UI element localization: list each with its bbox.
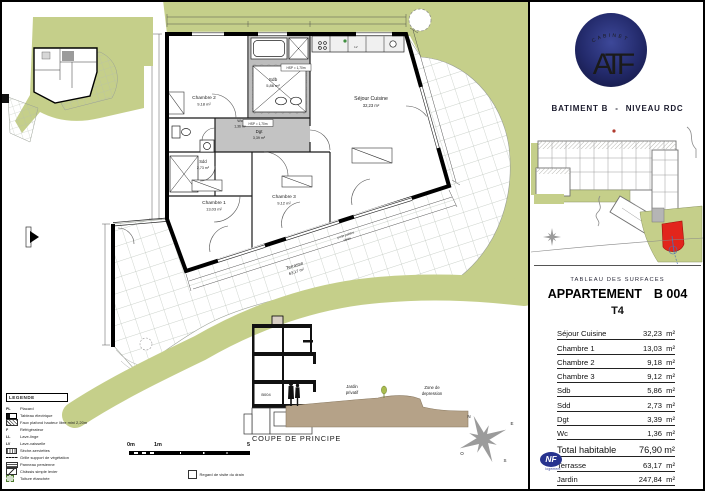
label-dgt: Dgt [256, 129, 264, 134]
svg-text:S: S [503, 458, 506, 463]
separator-line [534, 265, 701, 266]
svg-text:3,39 m²: 3,39 m² [253, 136, 266, 140]
label-wc: Wc [237, 119, 243, 123]
legend-item: LLLave-linge [6, 433, 156, 440]
surfaces-table: Séjour Cuisine32,23m² Chambre 113,03m² C… [557, 326, 675, 486]
person-silhouettes [288, 382, 300, 406]
label-sdd: Sdd [199, 159, 207, 164]
building-level-title: BATIMENT B-NIVEAU RDC [530, 104, 705, 113]
roof-membrane-icon [6, 475, 14, 483]
cabinet-atf-logo: CABINET ATF [575, 13, 647, 87]
svg-text:9,12 m²: 9,12 m² [277, 201, 291, 206]
apartment-type: T4 [530, 305, 705, 317]
table-row: Wc1,36m² [557, 426, 675, 440]
drain-inspection-icon [188, 470, 197, 479]
svg-text:Zone de: Zone de [424, 385, 440, 390]
table-row: Terrasse63,17m² [557, 457, 675, 471]
label-chambre3: Chambre 3 [272, 194, 296, 200]
shutter-panel-icon [6, 462, 18, 468]
table-row: Sdd2,73m² [557, 397, 675, 411]
svg-text:privatif: privatif [346, 390, 359, 395]
right-panel: CABINET ATF [530, 0, 705, 491]
apartment-title: APPARTEMENTB 004 [530, 287, 705, 301]
table-row: Séjour Cuisine32,23m² [557, 326, 675, 340]
label-chambre2: Chambre 2 [192, 95, 216, 101]
entry-arrow-icon [26, 227, 39, 247]
legend-item: FRéfrigérateur [6, 426, 156, 433]
panel-divider [528, 0, 530, 491]
svg-text:2,73 m²: 2,73 m² [197, 166, 210, 170]
nf-logo-icon: NF [540, 452, 562, 467]
map-compass-icon [543, 228, 561, 246]
svg-text:depression: depression [422, 391, 443, 396]
table-row: Chambre 39,12m² [557, 369, 675, 383]
label-chambre1: Chambre 1 [202, 200, 226, 206]
table-row: Chambre 113,03m² [557, 340, 675, 354]
legend-item: Tableau électrique [6, 412, 156, 419]
svg-text:ATF: ATF [593, 48, 635, 81]
table-row: Jardin247,84m² [557, 472, 675, 486]
coupe-title: COUPE DE PRINCIPE [252, 434, 341, 443]
svg-text:13,03 m²: 13,03 m² [206, 207, 222, 212]
surfaces-section-title: TABLEAU DES SURFACES [530, 277, 705, 283]
legend-item-drain: Regard de visite du drain [188, 470, 244, 479]
table-row: Chambre 29,18m² [557, 355, 675, 369]
kitchen-vent-mark [343, 39, 346, 42]
svg-text:9,18 m²: 9,18 m² [197, 102, 211, 107]
nf-certification-badge: NF logement [540, 452, 566, 471]
legend-item: PLPlacard [6, 405, 156, 412]
floorplan-sheet: Chambre 2 9,18 m² Sdb 5,86 m² Séjour Cui… [0, 0, 705, 491]
inset-site-plan [2, 17, 153, 142]
legend-title: LEGENDE [6, 393, 68, 402]
table-row: Dgt3,39m² [557, 412, 675, 426]
coupe-unit-label: B004 [261, 392, 271, 397]
coupe-de-principe: B004 Jardin privatif Zone de depression … [244, 316, 468, 443]
tree-circle-small [140, 338, 152, 350]
site-map [531, 127, 703, 266]
svg-text:1,36 m²: 1,36 m² [234, 125, 246, 129]
ceiling-hatch-icon [6, 419, 18, 426]
svg-text:HSP = 1,70m: HSP = 1,70m [249, 122, 268, 126]
table-row: Sdb5,86m² [557, 383, 675, 397]
electric-panel-icon [6, 413, 17, 419]
legend-item: Toiture étanchée [6, 475, 156, 482]
svg-text:5,86 m²: 5,86 m² [266, 83, 280, 88]
svg-text:LV: LV [354, 45, 357, 49]
bush-icon [381, 386, 386, 394]
legend-item: Faux plafond hauteur libre mini 2,20m [6, 419, 156, 426]
towel-dryer-icon [6, 448, 17, 454]
legend-item: Panneau persienne [6, 461, 156, 468]
svg-text:F: F [318, 45, 320, 49]
label-sejour: Séjour Cuisine [354, 96, 388, 102]
svg-text:HSP = 1,70m: HSP = 1,70m [287, 66, 306, 70]
svg-text:E: E [510, 421, 513, 426]
svg-text:O: O [460, 451, 464, 456]
svg-text:Jardin: Jardin [346, 384, 358, 389]
table-row-total: Total habitable76,90m² [557, 440, 675, 457]
legend: LEGENDE PLPlacard Tableau électrique Fau… [6, 393, 156, 482]
svg-text:32,23 m²: 32,23 m² [363, 103, 380, 108]
svg-text:N: N [467, 414, 470, 419]
legend-item: Châssis simple levier [6, 468, 156, 475]
tree-circle-large [409, 9, 431, 31]
ground-section [286, 396, 468, 428]
vegetation-grid-icon [6, 457, 18, 459]
legend-item: Grille support de végétation [6, 454, 156, 461]
scale-bar: 0m 1m 5 [127, 442, 257, 455]
